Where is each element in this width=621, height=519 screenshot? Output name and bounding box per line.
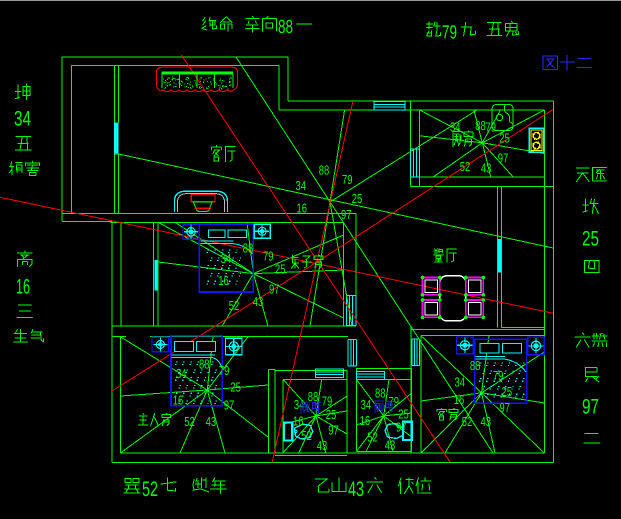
svg-text:97: 97 [269,281,280,296]
svg-text:52: 52 [301,428,312,443]
svg-text:79: 79 [486,119,497,134]
svg-text:88: 88 [319,162,330,177]
svg-text:43: 43 [348,478,364,501]
svg-text:52: 52 [367,430,378,445]
svg-text:34: 34 [221,251,232,266]
svg-text:25: 25 [352,191,363,206]
svg-text:52: 52 [142,478,158,501]
svg-text:88: 88 [375,385,386,400]
svg-text:97: 97 [500,400,511,415]
svg-text:88: 88 [475,118,486,133]
svg-text:88: 88 [278,17,293,38]
svg-text:43: 43 [206,414,217,429]
svg-text:79: 79 [219,363,230,378]
svg-text:34: 34 [296,178,307,193]
svg-text:25: 25 [230,379,241,394]
svg-text:16: 16 [297,200,308,215]
svg-text:97: 97 [498,150,509,165]
svg-text:97: 97 [341,207,352,222]
svg-text:88: 88 [199,356,210,371]
svg-text:79: 79 [263,248,274,263]
svg-text:52: 52 [460,159,471,174]
svg-text:16: 16 [173,393,184,408]
svg-text:97: 97 [582,396,599,419]
svg-text:43: 43 [481,160,492,175]
svg-text:97: 97 [396,419,407,434]
svg-text:52: 52 [184,414,195,429]
svg-text:79: 79 [442,23,457,44]
svg-text:16: 16 [454,392,465,407]
svg-text:43: 43 [253,294,263,309]
svg-text:16: 16 [218,273,229,288]
svg-text:25: 25 [275,261,286,276]
svg-text:34: 34 [14,108,31,131]
svg-text:25: 25 [499,131,510,146]
svg-text:43: 43 [481,414,492,429]
svg-text:97: 97 [224,398,235,413]
svg-text:52: 52 [229,298,240,313]
svg-text:34: 34 [361,397,372,412]
svg-text:79: 79 [493,368,504,383]
svg-text:88: 88 [308,389,319,404]
svg-text:16: 16 [293,413,304,428]
svg-text:97: 97 [328,422,339,437]
svg-text:88: 88 [470,358,481,373]
svg-text:25: 25 [502,384,512,399]
svg-text:16: 16 [360,413,371,428]
svg-text:52: 52 [462,414,473,429]
svg-text:79: 79 [342,172,353,187]
svg-text:25: 25 [326,407,337,422]
svg-text:34: 34 [455,374,466,389]
svg-text:43: 43 [385,437,396,452]
svg-text:34: 34 [450,119,461,134]
svg-text:16: 16 [16,276,30,299]
svg-text:88: 88 [243,240,254,255]
svg-text:43: 43 [317,438,328,453]
svg-text:34: 34 [176,366,187,381]
svg-text:25: 25 [582,228,599,251]
